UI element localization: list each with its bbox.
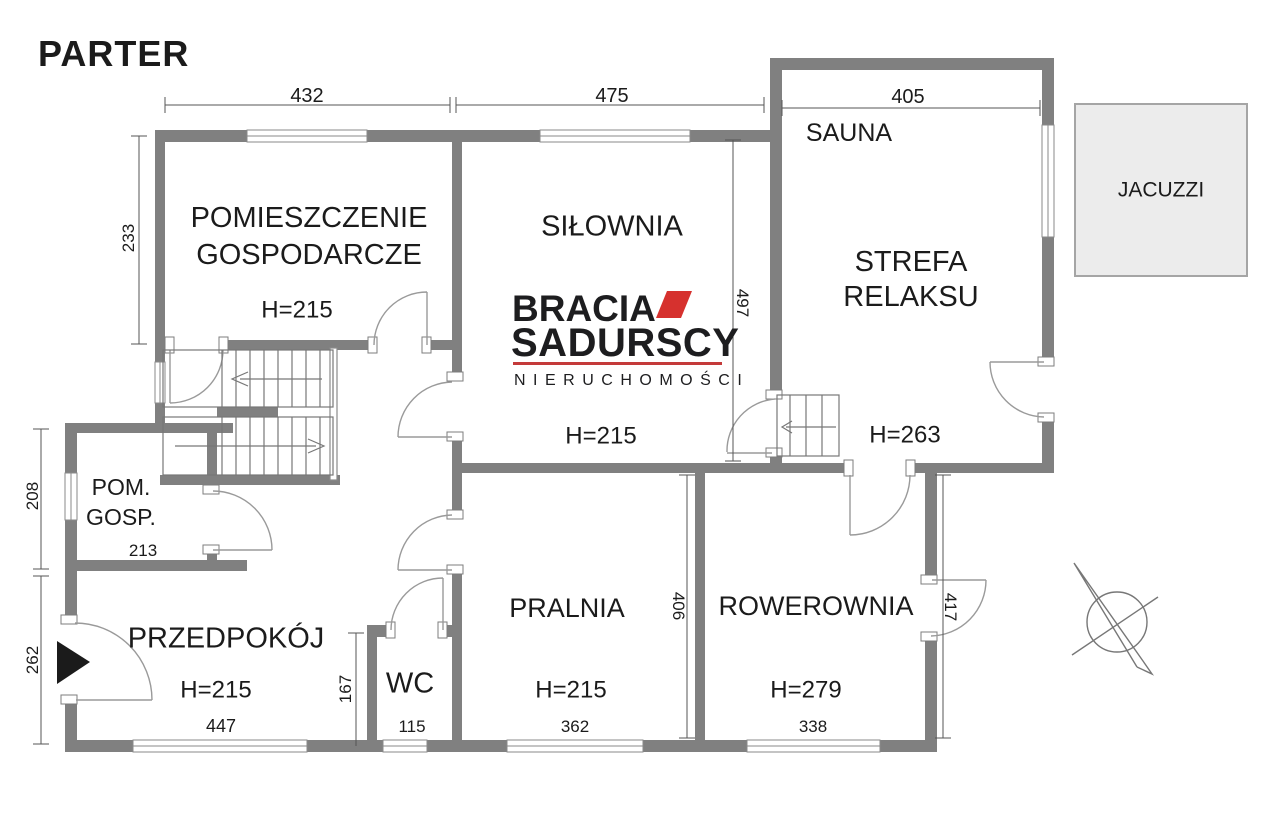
height-pralnia: H=215 bbox=[535, 677, 606, 706]
small-stairs bbox=[777, 395, 839, 456]
dim-338: 338 bbox=[799, 717, 827, 737]
dim-115: 115 bbox=[398, 717, 425, 737]
compass-icon bbox=[1072, 563, 1158, 674]
dim-432: 432 bbox=[290, 84, 323, 108]
entrance-arrow-icon bbox=[57, 641, 90, 684]
dim-167: 167 bbox=[336, 675, 356, 703]
dim-405: 405 bbox=[891, 85, 924, 109]
room-label-strefa-line2: RELAKSU bbox=[843, 280, 978, 315]
room-label-pomgosp: POM. GOSP. bbox=[86, 472, 156, 532]
floor-title: PARTER bbox=[38, 33, 189, 75]
height-strefa: H=263 bbox=[869, 422, 940, 451]
room-label-przedpokoj: PRZEDPOKÓJ bbox=[128, 622, 325, 657]
room-label-gospodarcze-line2: GOSPODARCZE bbox=[191, 237, 428, 274]
room-label-strefa-line1: STREFA bbox=[843, 245, 978, 280]
dim-233: 233 bbox=[119, 224, 139, 252]
dim-447: 447 bbox=[206, 716, 236, 738]
room-label-pomgosp-line2: GOSP. bbox=[86, 502, 156, 532]
height-rowerownia: H=279 bbox=[770, 677, 841, 706]
height-przedpokoj: H=215 bbox=[180, 677, 251, 706]
dim-417: 417 bbox=[940, 593, 960, 621]
dim-362: 362 bbox=[561, 717, 589, 737]
room-label-pomgosp-line1: POM. bbox=[86, 472, 156, 502]
height-gospodarcze: H=215 bbox=[261, 297, 332, 326]
room-label-jacuzzi: JACUZZI bbox=[1118, 177, 1204, 202]
room-label-gospodarcze: POMIESZCZENIE GOSPODARCZE bbox=[191, 200, 428, 274]
logo-brand-line2: SADURSCY bbox=[511, 321, 739, 366]
room-label-wc: WC bbox=[386, 667, 434, 702]
room-label-strefa: STREFA RELAKSU bbox=[843, 245, 978, 315]
dim-213: 213 bbox=[129, 541, 157, 561]
room-label-silownia: SIŁOWNIA bbox=[541, 210, 683, 245]
dim-262: 262 bbox=[23, 646, 43, 674]
height-silownia: H=215 bbox=[565, 423, 636, 452]
room-label-gospodarcze-line1: POMIESZCZENIE bbox=[191, 200, 428, 237]
dim-208: 208 bbox=[23, 482, 43, 510]
dim-406: 406 bbox=[668, 592, 688, 620]
room-label-rowerownia: ROWEROWNIA bbox=[719, 590, 914, 622]
logo-tagline: NIERUCHOMOŚCI bbox=[514, 372, 749, 390]
dim-475: 475 bbox=[595, 84, 628, 108]
room-label-sauna: SAUNA bbox=[806, 118, 892, 148]
dim-497: 497 bbox=[732, 289, 752, 317]
room-label-pralnia: PRALNIA bbox=[509, 592, 625, 624]
floor-plan: PARTER 432 475 405 233 208 262 497 406 4… bbox=[0, 0, 1280, 819]
